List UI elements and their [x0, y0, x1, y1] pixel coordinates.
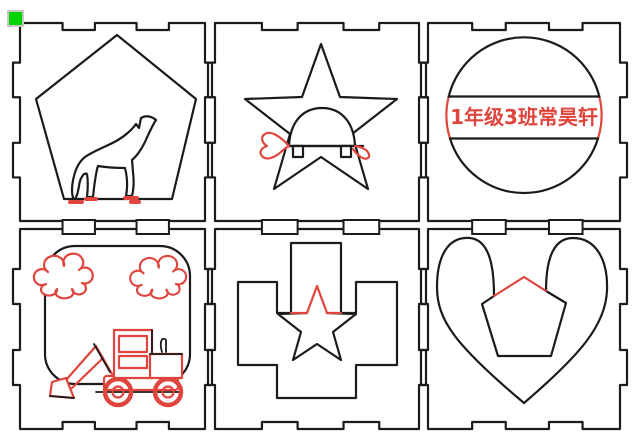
pentagon-black-part: [482, 291, 566, 356]
layout-svg: 1年级3班常昊轩: [0, 0, 638, 448]
joint-box: [262, 220, 298, 234]
tile-heart-pentagon[interactable]: [421, 229, 627, 429]
joint-box: [137, 220, 169, 234]
stepped-cross-shape: [238, 243, 397, 398]
design-canvas[interactable]: 1年级3班常昊轩: [0, 0, 638, 448]
tile-cross-star[interactable]: [208, 229, 426, 429]
tile-clouds-loader[interactable]: [13, 229, 212, 429]
joint-box: [344, 220, 380, 234]
wheel-loader-engraving: [50, 330, 182, 405]
heart-left-lobe: [437, 238, 524, 403]
loader-bucket: [50, 378, 74, 398]
name-tag-text: 1年级3班常昊轩: [450, 105, 598, 129]
pentagon-red-top: [494, 277, 546, 296]
circle-top-arc: [449, 37, 600, 96]
circle-right-red-arc: [598, 97, 602, 139]
pentagon-shape: [36, 35, 196, 199]
cloud-right: [130, 256, 186, 298]
star-black-part: [278, 313, 356, 360]
tile-star-turtle[interactable]: [208, 23, 426, 221]
loader-boom-edge: [94, 344, 110, 372]
cloud-left: [34, 254, 93, 299]
joint-box: [472, 220, 506, 234]
turtle-foot-left: [293, 146, 303, 157]
heart-right-lobe: [524, 238, 607, 403]
tile-circle-name-tag[interactable]: 1年级3班常昊轩: [421, 23, 627, 221]
wolf-engraving: [72, 116, 156, 200]
star-red-tip: [291, 286, 341, 313]
turtle-foot-right: [341, 146, 351, 157]
loader-exhaust: [161, 339, 166, 352]
joint-box: [549, 220, 583, 234]
tile-outline: [13, 229, 212, 429]
tile-outline: [421, 229, 627, 429]
turtle-shell: [289, 108, 355, 146]
tile-pentagon-wolf[interactable]: [13, 23, 212, 221]
circle-bottom-arc: [450, 139, 598, 193]
joint-box: [63, 220, 95, 234]
origin-marker[interactable]: [8, 11, 23, 26]
finger-joint-tabs: [63, 220, 583, 234]
loader-engine: [150, 354, 182, 378]
